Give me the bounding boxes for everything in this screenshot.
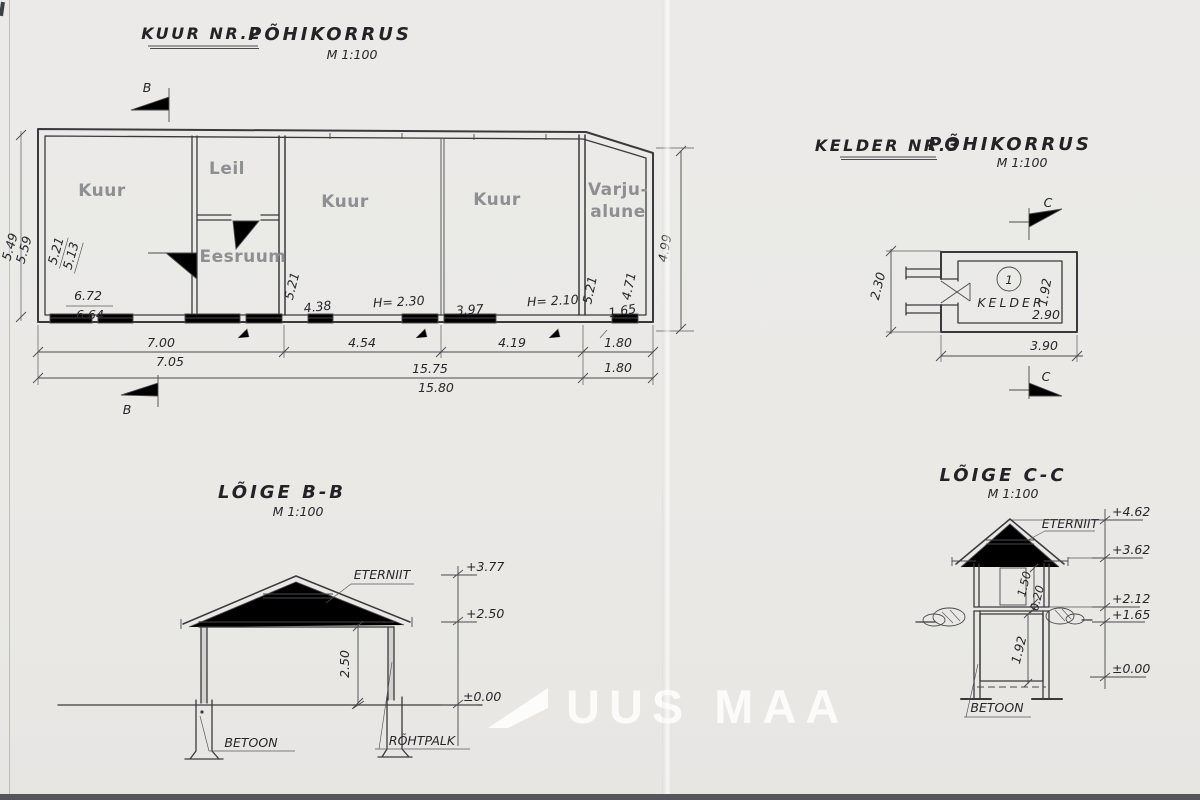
marker-b-top-label: B: [143, 80, 152, 95]
section-cc: LÕIGE C-C M 1:100 1.50 0.20: [916, 463, 1150, 717]
section-cc-scale: M 1:100: [988, 486, 1039, 501]
main-plan-interior-dims: 5.21 5.13 6.72 6.64 5.21 4.38 H= 2.30 3.…: [44, 233, 639, 322]
dim-seg2: 4.54: [348, 335, 376, 350]
section-cc-title-block: LÕIGE C-C M 1:100: [939, 463, 1066, 501]
main-plan-subtitle: PÕHIKORRUS: [248, 22, 412, 45]
dim-kuur3-opening: 3.97: [455, 301, 484, 318]
kelder-title-block: KELDER NR.3 PÕHIKORRUS M 1:100: [815, 132, 1092, 170]
marker-c-bottom-label: C: [1042, 369, 1051, 384]
section-marker-b-bottom: B: [121, 375, 158, 417]
section-marker-c-bottom: C: [1009, 366, 1062, 399]
dim-bb-clear-height: 2.50: [337, 650, 352, 678]
room-label-kuur3: Kuur: [473, 190, 521, 210]
elev-bb-eave: +2.50: [466, 606, 504, 621]
room-label-varjualune-1: Varju-: [588, 180, 648, 200]
paper-fold-seam: [662, 0, 672, 800]
dim-kuur2-ceiling-height: H= 2.30: [373, 293, 425, 311]
main-plan-scale: M 1:100: [327, 47, 378, 62]
dim-kelder-outer-width: 3.90: [1030, 338, 1058, 353]
main-plan-bottom-dims: 7.00 7.05 4.54 4.19 1.80 15.75 15.80 1.8…: [33, 325, 658, 395]
kelder-outer-dims: 2.30 3.90: [867, 246, 1083, 362]
room-label-leil: Leil: [209, 159, 245, 179]
dim-cc-cellar-height: 1.92: [1008, 635, 1029, 666]
section-bb-scale: M 1:100: [273, 504, 324, 519]
kelder-subtitle: PÕHIKORRUS: [928, 132, 1092, 155]
elev-cc-ground: +1.65: [1112, 607, 1150, 622]
dim-kuur1-width-b: 6.64: [76, 307, 104, 322]
label-bb-eterniit: ETERNIIT: [354, 567, 412, 582]
section-bb: LÕIGE B-B M 1:100 2.50 ETERNIIT BETOON: [58, 480, 504, 759]
dim-kelder-inner-width: 2.90: [1032, 307, 1060, 322]
room-number: 1: [1005, 273, 1012, 287]
dim-kuur2-opening: 4.38: [303, 298, 332, 316]
elev-cc-ridge: +4.62: [1112, 504, 1150, 519]
dim-seg1-alt: 7.05: [156, 354, 184, 369]
section-bb-elevations: +3.77 +2.50 ±0.00: [441, 559, 504, 746]
kelder-room: 1 KELDER 1.92 2.90: [977, 267, 1060, 322]
label-bb-rohtpalk: RÕHTPALK: [389, 733, 457, 748]
elev-bb-ridge: +3.77: [466, 559, 504, 574]
room-label-kuur2: Kuur: [321, 192, 369, 212]
scan-bottom-edge: [0, 794, 1200, 800]
label-cc-betoon: BETOON: [970, 700, 1024, 715]
section-bb-dim: 2.50: [337, 621, 363, 708]
main-plan-title-block: KUUR NR.2 PÕHIKORRUS M 1:100: [141, 22, 412, 62]
marker-c-top-label: C: [1044, 195, 1053, 210]
dim-seg4-alt: 1.80: [604, 360, 632, 375]
kelder-scale: M 1:100: [997, 155, 1048, 170]
section-bb-structure: [58, 576, 482, 759]
dim-kuur3-right: 5.21: [579, 275, 599, 305]
room-label-varjualune-2: alune: [590, 202, 646, 222]
window-openings: [50, 314, 638, 338]
dim-kelder-outer-height: 2.30: [867, 271, 888, 302]
room-labels: Kuur Leil Eesruum Kuur Kuur Varju- alune: [78, 159, 648, 267]
dim-kuur1-width-a: 6.72: [74, 288, 102, 303]
elev-cc-eave: +3.62: [1112, 542, 1150, 557]
kelder-plan: KELDER NR.3 PÕHIKORRUS M 1:100 C 1 KELDE…: [815, 132, 1092, 399]
label-cc-eterniit: ETERNIIT: [1042, 516, 1100, 531]
blueprint-drawing: KUUR NR.2 PÕHIKORRUS M 1:100 B: [0, 0, 1200, 800]
dim-kuur3-ceiling-height: H= 2.10: [527, 292, 579, 310]
elev-bb-ground: ±0.00: [463, 689, 501, 704]
section-cc-structure: [916, 519, 1092, 699]
main-plan-title: KUUR NR.2: [141, 24, 262, 43]
dim-kuur2-left: 5.21: [281, 271, 302, 302]
elev-cc-cellar: ±0.00: [1112, 661, 1150, 676]
main-plan-right-dim: 4.99: [655, 146, 694, 334]
dim-seg4: 1.80: [604, 335, 632, 350]
dim-seg1: 7.00: [147, 335, 175, 350]
section-bb-title-block: LÕIGE B-B M 1:100: [218, 480, 346, 519]
dim-total-alt: 15.80: [418, 380, 454, 395]
section-cc-title: LÕIGE C-C: [939, 463, 1066, 486]
room-label-kuur1: Kuur: [78, 181, 126, 201]
room-label-eesruum: Eesruum: [199, 247, 286, 267]
marker-b-bottom-label: B: [123, 402, 132, 417]
section-cc-dims: 1.50 0.20 1.92: [1008, 564, 1047, 687]
dim-total: 15.75: [412, 361, 448, 376]
label-bb-betoon: BETOON: [224, 735, 278, 750]
main-plan: KUUR NR.2 PÕHIKORRUS M 1:100 B: [0, 22, 694, 417]
section-marker-b-top: B: [131, 80, 169, 122]
dim-seg3: 4.19: [498, 335, 526, 350]
scanned-blueprint-page: KUUR NR.2 PÕHIKORRUS M 1:100 B: [0, 0, 1200, 800]
section-bb-labels: ETERNIIT BETOON RÕHTPALK: [200, 567, 470, 751]
dim-varjualune-height: 4.71: [618, 271, 638, 301]
elev-cc-floor: +2.12: [1112, 591, 1150, 606]
paper-edge-line: [9, 0, 10, 800]
dim-kelder-inner-height: 1.92: [1035, 277, 1055, 307]
section-marker-c-top: C: [1009, 195, 1062, 240]
main-plan-left-dim: 5.49 5.59: [0, 130, 35, 322]
section-bb-title: LÕIGE B-B: [218, 480, 346, 503]
